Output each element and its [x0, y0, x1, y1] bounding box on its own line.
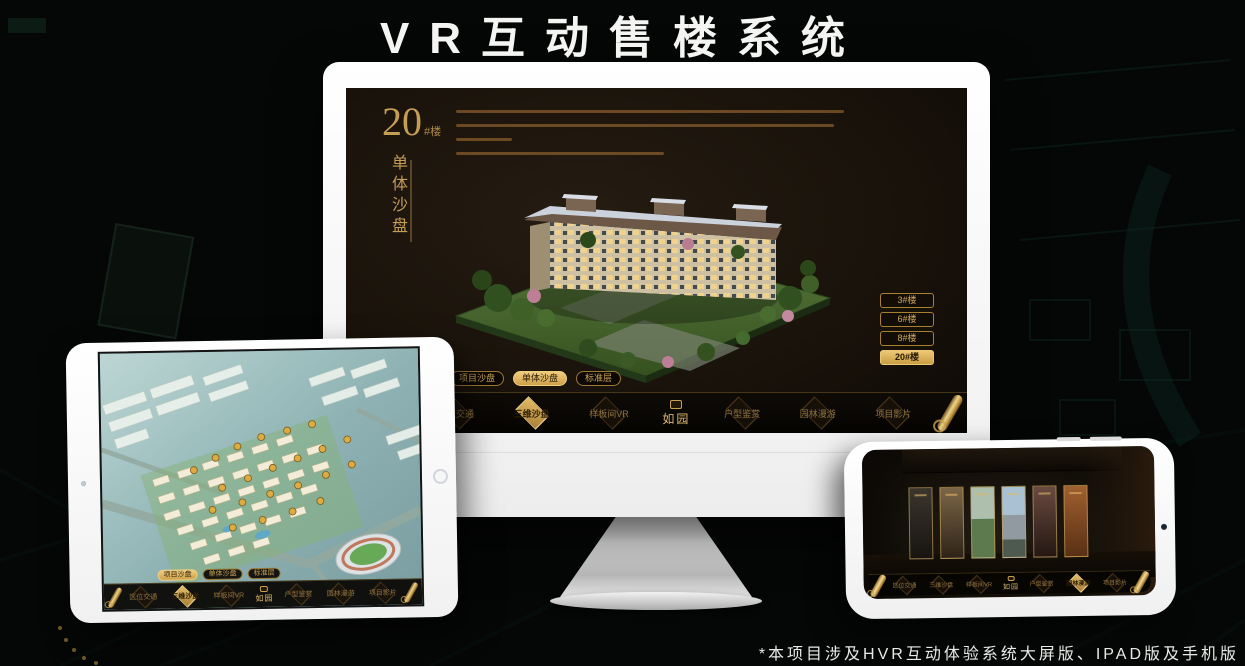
monitor-base: [550, 592, 762, 610]
tablet-camera-icon: [81, 481, 86, 486]
nav-item-showroom-vr[interactable]: 样板间VR: [583, 403, 635, 424]
unit-title: 20#楼: [382, 102, 441, 142]
gallery-panels: [908, 485, 1088, 559]
page-title: VR互动售楼系统: [0, 2, 1245, 66]
nav-item-showroom-vr[interactable]: 样板间VR: [964, 577, 995, 590]
scroll-ornament-icon[interactable]: [936, 393, 965, 433]
tablet-device: 项目沙盘 单体沙盘 标准层 区位交通 三维沙盘 样板间VR 如园 户型鉴赏 园林…: [66, 337, 459, 624]
floor-button-20[interactable]: 20#楼: [880, 350, 934, 365]
floor-button-8[interactable]: 8#楼: [880, 331, 934, 346]
seal-icon: [1007, 575, 1014, 580]
phone-camera-icon: [1161, 523, 1167, 529]
tab-single-sandtable[interactable]: 单体沙盘: [513, 371, 567, 386]
intro-text-line: [456, 138, 512, 141]
scroll-ornament-icon[interactable]: [869, 573, 887, 597]
brand-logo-text: 如园: [1003, 581, 1019, 591]
tab-standard-floor[interactable]: 标准层: [576, 371, 621, 386]
building-3d-render[interactable]: [438, 148, 843, 386]
gallery-panel[interactable]: [970, 486, 995, 558]
nav-item-garden-roam[interactable]: 园林漫游: [794, 403, 842, 424]
intro-text-line: [456, 124, 834, 127]
seal-icon: [260, 585, 268, 591]
nav-item-unit-gallery[interactable]: 户型鉴赏: [281, 586, 315, 603]
nav-item-unit-gallery[interactable]: 户型鉴赏: [718, 403, 766, 424]
nav-item-unit-gallery[interactable]: 户型鉴赏: [1027, 576, 1055, 589]
gallery-panel[interactable]: [1001, 486, 1026, 558]
nav-item-3d-sandtable[interactable]: 三维沙盘: [168, 588, 202, 605]
tab-single-sandtable[interactable]: 单体沙盘: [203, 568, 243, 580]
phone-device: 区位交通 三维沙盘 样板间VR 如园 户型鉴赏 园林漫游 项目影片: [844, 438, 1176, 620]
gallery-panel[interactable]: [939, 487, 964, 559]
footnote: *本项目涉及HVR互动体验系统大屏版、IPAD版及手机版: [759, 640, 1239, 664]
page: VR互动售楼系统 20#楼 单体沙盘: [0, 0, 1245, 666]
brand-logo-text: 如园: [255, 592, 273, 603]
gallery-panel[interactable]: [1032, 485, 1057, 557]
brand-logo-text: 如园: [662, 410, 690, 427]
unit-subtitle-divider: [410, 160, 412, 242]
nav-item-showroom-vr[interactable]: 样板间VR: [210, 587, 247, 604]
intro-text-line: [456, 110, 844, 113]
brand-logo: 如园: [1003, 575, 1019, 591]
tablet-sub-tabs: 项目沙盘 单体沙盘 标准层: [158, 568, 281, 581]
nav-item-3d-sandtable[interactable]: 三维沙盘: [508, 403, 556, 424]
tablet-home-button[interactable]: [433, 469, 448, 484]
tab-project-sandtable[interactable]: 项目沙盘: [158, 569, 198, 581]
tablet-bottom-nav: 区位交通 三维沙盘 样板间VR 如园 户型鉴赏 园林漫游 项目影片: [104, 578, 422, 610]
nav-item-garden-roam[interactable]: 园林漫游: [1064, 576, 1092, 589]
floor-button-group: 3#楼 6#楼 8#楼 20#楼: [880, 293, 934, 365]
gallery-panel[interactable]: [1063, 485, 1088, 557]
unit-number: 20: [382, 99, 422, 144]
nav-item-project-film[interactable]: 项目影片: [869, 403, 917, 424]
nav-item-location-traffic[interactable]: 区位交通: [126, 588, 160, 605]
tablet-screen: 项目沙盘 单体沙盘 标准层 区位交通 三维沙盘 样板间VR 如园 户型鉴赏 园林…: [98, 346, 424, 612]
gallery-panel[interactable]: [908, 487, 933, 559]
phone-bottom-nav: 区位交通 三维沙盘 样板间VR 如园 户型鉴赏 园林漫游 项目影片: [869, 570, 1151, 596]
tab-project-sandtable[interactable]: 项目沙盘: [450, 371, 504, 386]
phone-screen: 区位交通 三维沙盘 样板间VR 如园 户型鉴赏 园林漫游 项目影片: [862, 446, 1156, 599]
nav-item-garden-roam[interactable]: 园林漫游: [324, 585, 358, 602]
nav-item-3d-sandtable[interactable]: 三维沙盘: [927, 578, 955, 591]
phone-volume-button[interactable]: [1090, 436, 1122, 440]
floor-button-6[interactable]: 6#楼: [880, 312, 934, 327]
brand-logo: 如园: [255, 585, 273, 603]
nav-item-project-film[interactable]: 项目影片: [1101, 575, 1129, 588]
unit-subtitle-vertical: 单体沙盘: [385, 154, 409, 238]
floor-button-3[interactable]: 3#楼: [880, 293, 934, 308]
unit-suffix: #楼: [424, 126, 441, 138]
phone-volume-button[interactable]: [1057, 437, 1081, 441]
brand-logo: 如园: [662, 400, 690, 427]
nav-item-project-film[interactable]: 项目影片: [366, 584, 400, 601]
nav-item-location-traffic[interactable]: 区位交通: [890, 578, 918, 591]
scroll-ornament-icon[interactable]: [403, 581, 419, 603]
tab-standard-floor[interactable]: 标准层: [248, 568, 281, 580]
seal-icon: [670, 400, 682, 409]
monitor-sub-tabs: 项目沙盘 单体沙盘 标准层: [450, 371, 621, 386]
scroll-ornament-icon[interactable]: [107, 586, 123, 608]
